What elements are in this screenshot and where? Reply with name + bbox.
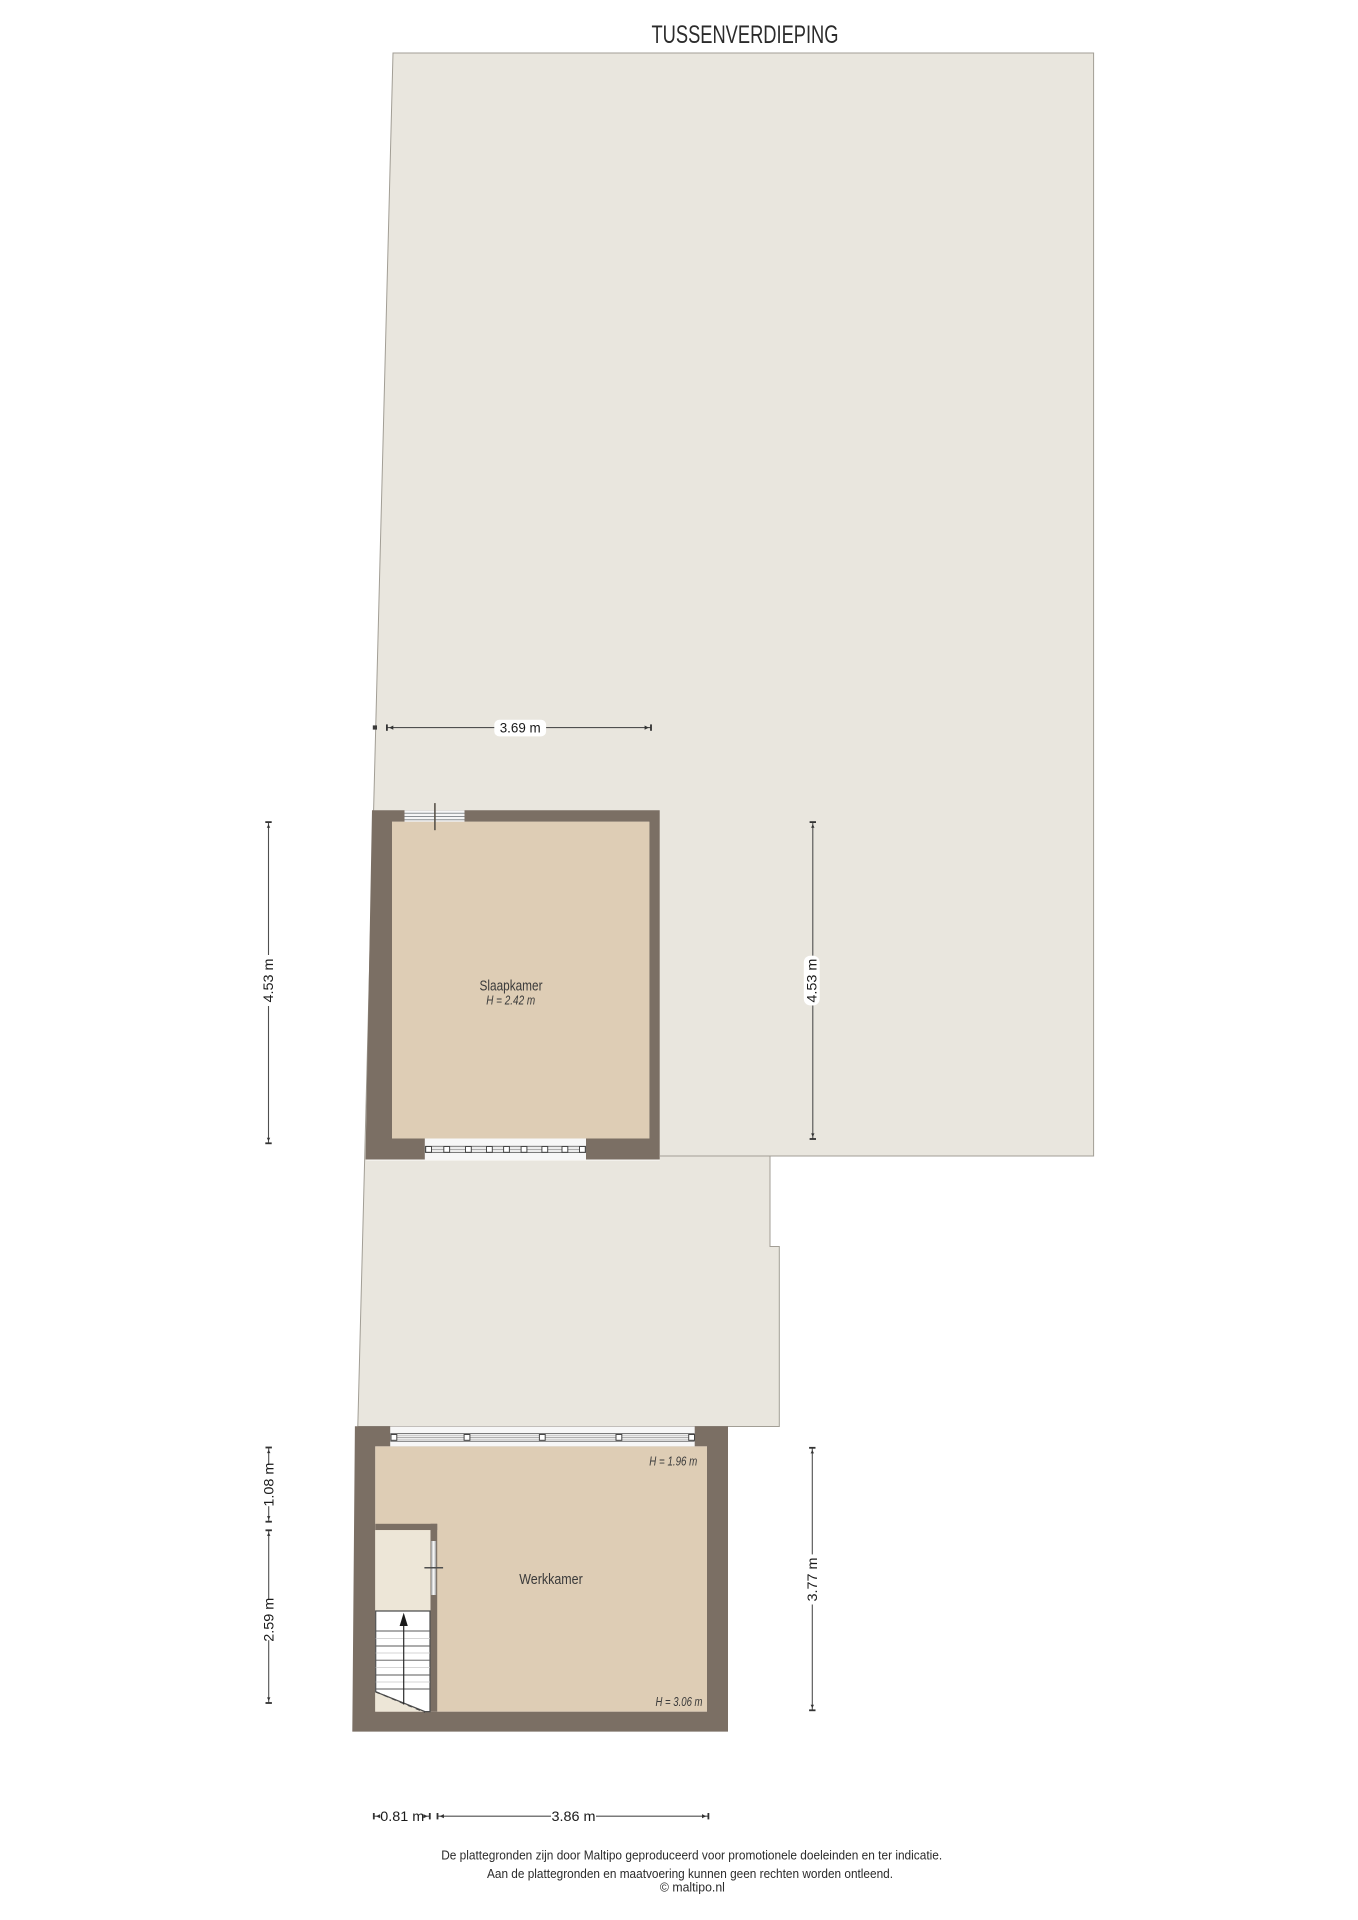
svg-text:3.77 m: 3.77 m [805,1558,820,1602]
svg-text:3.69 m: 3.69 m [500,720,541,735]
svg-text:4.53 m: 4.53 m [804,959,819,1003]
svg-text:3.86 m: 3.86 m [552,1809,596,1824]
svg-text:4.53 m: 4.53 m [261,959,276,1003]
svg-text:© maltipo.nl: © maltipo.nl [660,1880,725,1895]
svg-text:TUSSENVERDIEPING: TUSSENVERDIEPING [652,21,839,49]
svg-text:De plattegronden zijn door Mal: De plattegronden zijn door Maltipo gepro… [441,1848,942,1863]
svg-text:H = 1.96 m: H = 1.96 m [649,1454,697,1469]
svg-text:2.59 m: 2.59 m [261,1598,276,1642]
svg-text:0.81 m: 0.81 m [380,1809,424,1824]
svg-text:H = 3.06 m: H = 3.06 m [656,1694,703,1709]
svg-text:H = 2.42 m: H = 2.42 m [486,992,535,1007]
svg-text:Werkkamer: Werkkamer [519,1571,583,1588]
svg-text:1.08 m: 1.08 m [261,1463,276,1507]
